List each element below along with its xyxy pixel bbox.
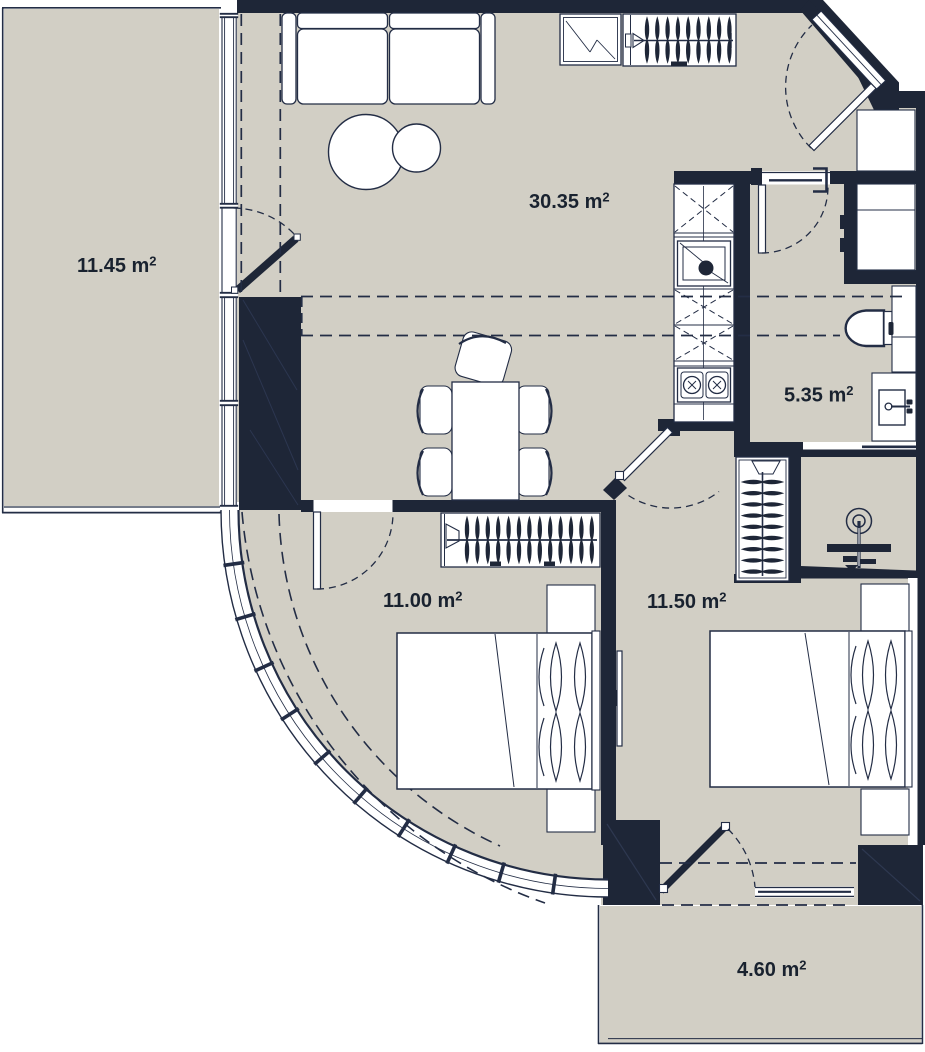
svg-text:30.35 m2: 30.35 m2: [529, 190, 610, 214]
svg-text:11.50 m2: 11.50 m2: [647, 590, 727, 614]
svg-text:11.00 m2: 11.00 m2: [383, 589, 463, 613]
svg-text:5.35 m2: 5.35 m2: [784, 383, 854, 407]
svg-text:11.45 m2: 11.45 m2: [77, 254, 157, 278]
svg-text:4.60 m2: 4.60 m2: [737, 958, 807, 982]
